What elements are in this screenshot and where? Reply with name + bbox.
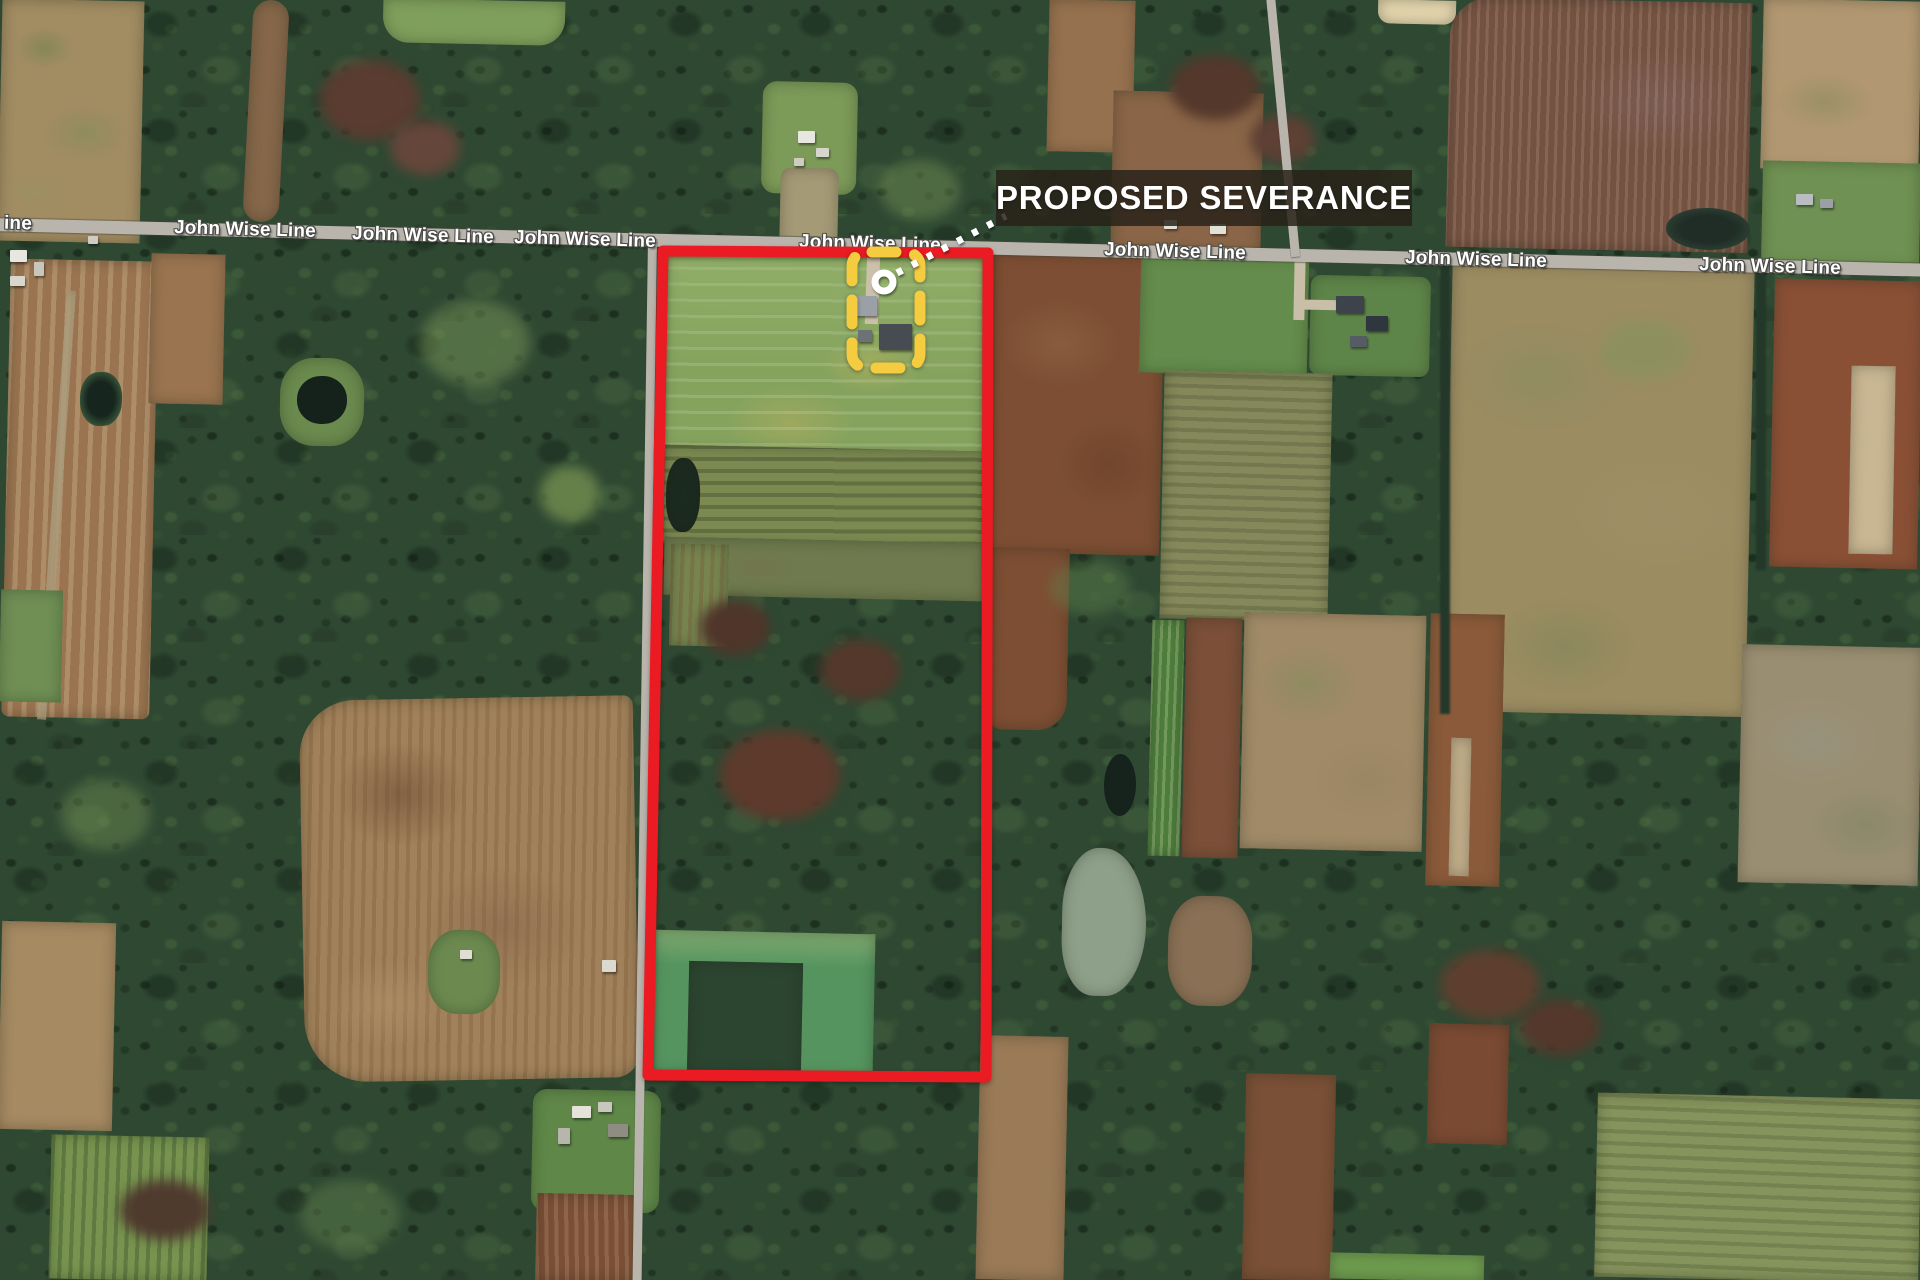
satellite-map: ine John Wise Line John Wise Line John W… (0, 0, 1920, 1280)
property-boundary (648, 251, 988, 1077)
severance-marker-box (852, 252, 920, 368)
annotation-overlay (0, 0, 1920, 1280)
marker-ring-icon (875, 273, 893, 291)
proposed-severance-label: PROPOSED SEVERANCE (996, 170, 1412, 226)
